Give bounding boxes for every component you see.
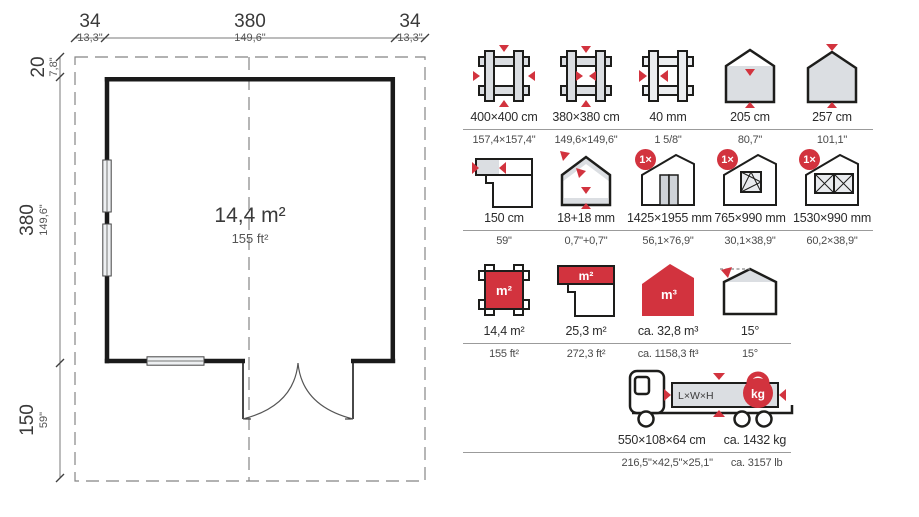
spec-value-imperial: 149,6×149,6" xyxy=(545,130,627,147)
terrace-depth-icon xyxy=(463,155,545,209)
spec-door: 1× 1425×1955 mm 56,1×76,9" xyxy=(627,155,709,248)
floor-plan: 34 13,3" 380 149,6" 34 13,3" 20 7,8" 380… xyxy=(0,0,460,517)
dim-left-top-in: 7,8" xyxy=(48,57,60,76)
transport-values: 550×108×64 cm ca. 1432 kg xyxy=(463,433,791,453)
quantity-badge: 1× xyxy=(799,149,820,170)
dim-left-top-cm: 20 xyxy=(28,56,49,77)
transport-values-imperial: 216,5"×42,5"×25,1" ca. 3157 lb xyxy=(463,453,791,470)
spec-roof-floor-thickness: 18+18 mm 0,7"+0,7" xyxy=(545,155,627,248)
spec-terrace-area: m² 25,3 m² 272,3 ft² xyxy=(545,256,627,361)
spec-value-imperial: 101,1" xyxy=(791,130,873,147)
spec-value: ca. 32,8 m³ xyxy=(627,324,709,344)
dim-left-bottom-in: 59" xyxy=(38,412,50,428)
dim-top-center-in: 149,6" xyxy=(234,32,266,44)
dim-top-left-in: 13,3" xyxy=(77,32,102,44)
spec-volume: m³ ca. 32,8 m³ ca. 1158,3 ft³ xyxy=(627,256,709,361)
spec-row-2: 150 cm 59" 18+18 mm 0,7"+0 xyxy=(463,155,875,248)
roof-pitch-icon xyxy=(709,256,791,322)
double-door-swing xyxy=(243,363,353,419)
spec-value-imperial: 1 5/8" xyxy=(627,130,709,147)
spec-value-imperial: 60,2×38,9" xyxy=(791,231,873,248)
m2-label: m² xyxy=(496,283,513,298)
kg-label: kg xyxy=(751,387,765,401)
dim-top-right-in: 13,3" xyxy=(397,32,422,44)
ridge-height-icon xyxy=(791,36,873,108)
spec-value-imperial: 30,1×38,9" xyxy=(709,231,791,248)
floor-area-icon: m² xyxy=(463,256,545,322)
dim-left-bottom-cm: 150 xyxy=(17,404,38,436)
spec-floor-area: m² 14,4 m² 155 ft² xyxy=(463,256,545,361)
dim-top-right-cm: 34 xyxy=(399,11,421,32)
spec-terrace-depth: 150 cm 59" xyxy=(463,155,545,248)
wall-height-icon xyxy=(709,36,791,108)
spec-value: 380×380 cm xyxy=(545,110,627,130)
spec-value: 205 cm xyxy=(709,110,791,130)
spec-value-imperial: 59" xyxy=(463,231,545,248)
spec-value-imperial: 155 ft² xyxy=(463,344,545,361)
dim-left-middle-cm: 380 xyxy=(17,204,38,236)
spec-value: 18+18 mm xyxy=(545,211,627,231)
dim-left-middle-in: 149,6" xyxy=(38,204,50,236)
spec-value: 25,3 m² xyxy=(545,324,627,344)
spec-sheet: 34 13,3" 380 149,6" 34 13,3" 20 7,8" 380… xyxy=(0,0,919,517)
spec-row-4: L×W×H kg xyxy=(463,367,875,470)
spec-ridge-height: 257 cm 101,1" xyxy=(791,36,873,147)
window-double-icon: 1× xyxy=(791,155,873,209)
spec-value-imperial: 80,7" xyxy=(709,130,791,147)
footprint-outer-icon xyxy=(463,36,545,108)
spec-row-1: 400×400 cm 157,4×157,4" xyxy=(463,36,875,147)
spec-footprint-outer: 400×400 cm 157,4×157,4" xyxy=(463,36,545,147)
spec-transport: L×W×H kg xyxy=(463,367,791,470)
transport-weight: ca. 1432 kg xyxy=(724,433,786,448)
spec-wall-height: 205 cm 80,7" xyxy=(709,36,791,147)
plan-area-metric: 14,4 m² xyxy=(214,204,285,227)
spec-value: 14,4 m² xyxy=(463,324,545,344)
volume-icon: m³ xyxy=(627,256,709,322)
windows xyxy=(103,160,204,365)
spec-window-double: 1× 1530×990 mm 60,2×38,9" xyxy=(791,155,873,248)
roof-floor-thickness-icon xyxy=(545,155,627,209)
transport-truck-icon: L×W×H kg xyxy=(463,367,791,431)
wall-thickness-icon xyxy=(627,36,709,108)
m2-label: m² xyxy=(579,269,594,283)
spec-roof-pitch: 15° 15° xyxy=(709,256,791,361)
spec-grid: 400×400 cm 157,4×157,4" xyxy=(463,36,875,470)
window-single-icon: 1× xyxy=(709,155,791,209)
quantity-badge: 1× xyxy=(717,149,738,170)
footprint-inner-icon xyxy=(545,36,627,108)
spec-value: 150 cm xyxy=(463,211,545,231)
transport-weight-imperial: ca. 3157 lb xyxy=(731,457,783,470)
transport-size: 550×108×64 cm xyxy=(618,433,706,448)
spec-value: 257 cm xyxy=(791,110,873,130)
spec-value: 1530×990 mm xyxy=(791,211,873,231)
spec-value: 400×400 cm xyxy=(463,110,545,130)
door-icon: 1× xyxy=(627,155,709,209)
spec-row-3: m² 14,4 m² 155 ft² m² 25,3 m² 272,3 ft² xyxy=(463,256,875,361)
spec-window-single: 1× 765×990 mm 30,1×38,9" xyxy=(709,155,791,248)
m3-label: m³ xyxy=(661,287,678,302)
spec-value-imperial: 157,4×157,4" xyxy=(463,130,545,147)
spec-value: 765×990 mm xyxy=(709,211,791,231)
spec-value: 40 mm xyxy=(627,110,709,130)
spec-value: 1425×1955 mm xyxy=(627,211,709,231)
dim-top-left-cm: 34 xyxy=(79,11,101,32)
spec-wall-thickness: 40 mm 1 5/8" xyxy=(627,36,709,147)
spec-value: 15° xyxy=(709,324,791,344)
lwh-label: L×W×H xyxy=(678,390,714,402)
dim-top-center-cm: 380 xyxy=(234,11,266,32)
quantity-badge: 1× xyxy=(635,149,656,170)
spec-footprint-inner: 380×380 cm 149,6×149,6" xyxy=(545,36,627,147)
transport-size-imperial: 216,5"×42,5"×25,1" xyxy=(622,457,713,470)
door-jambs xyxy=(243,363,353,419)
spec-value-imperial: 56,1×76,9" xyxy=(627,231,709,248)
plan-area-imperial: 155 ft² xyxy=(232,231,270,246)
terrace-area-icon: m² xyxy=(545,256,627,322)
spec-value-imperial: 0,7"+0,7" xyxy=(545,231,627,248)
